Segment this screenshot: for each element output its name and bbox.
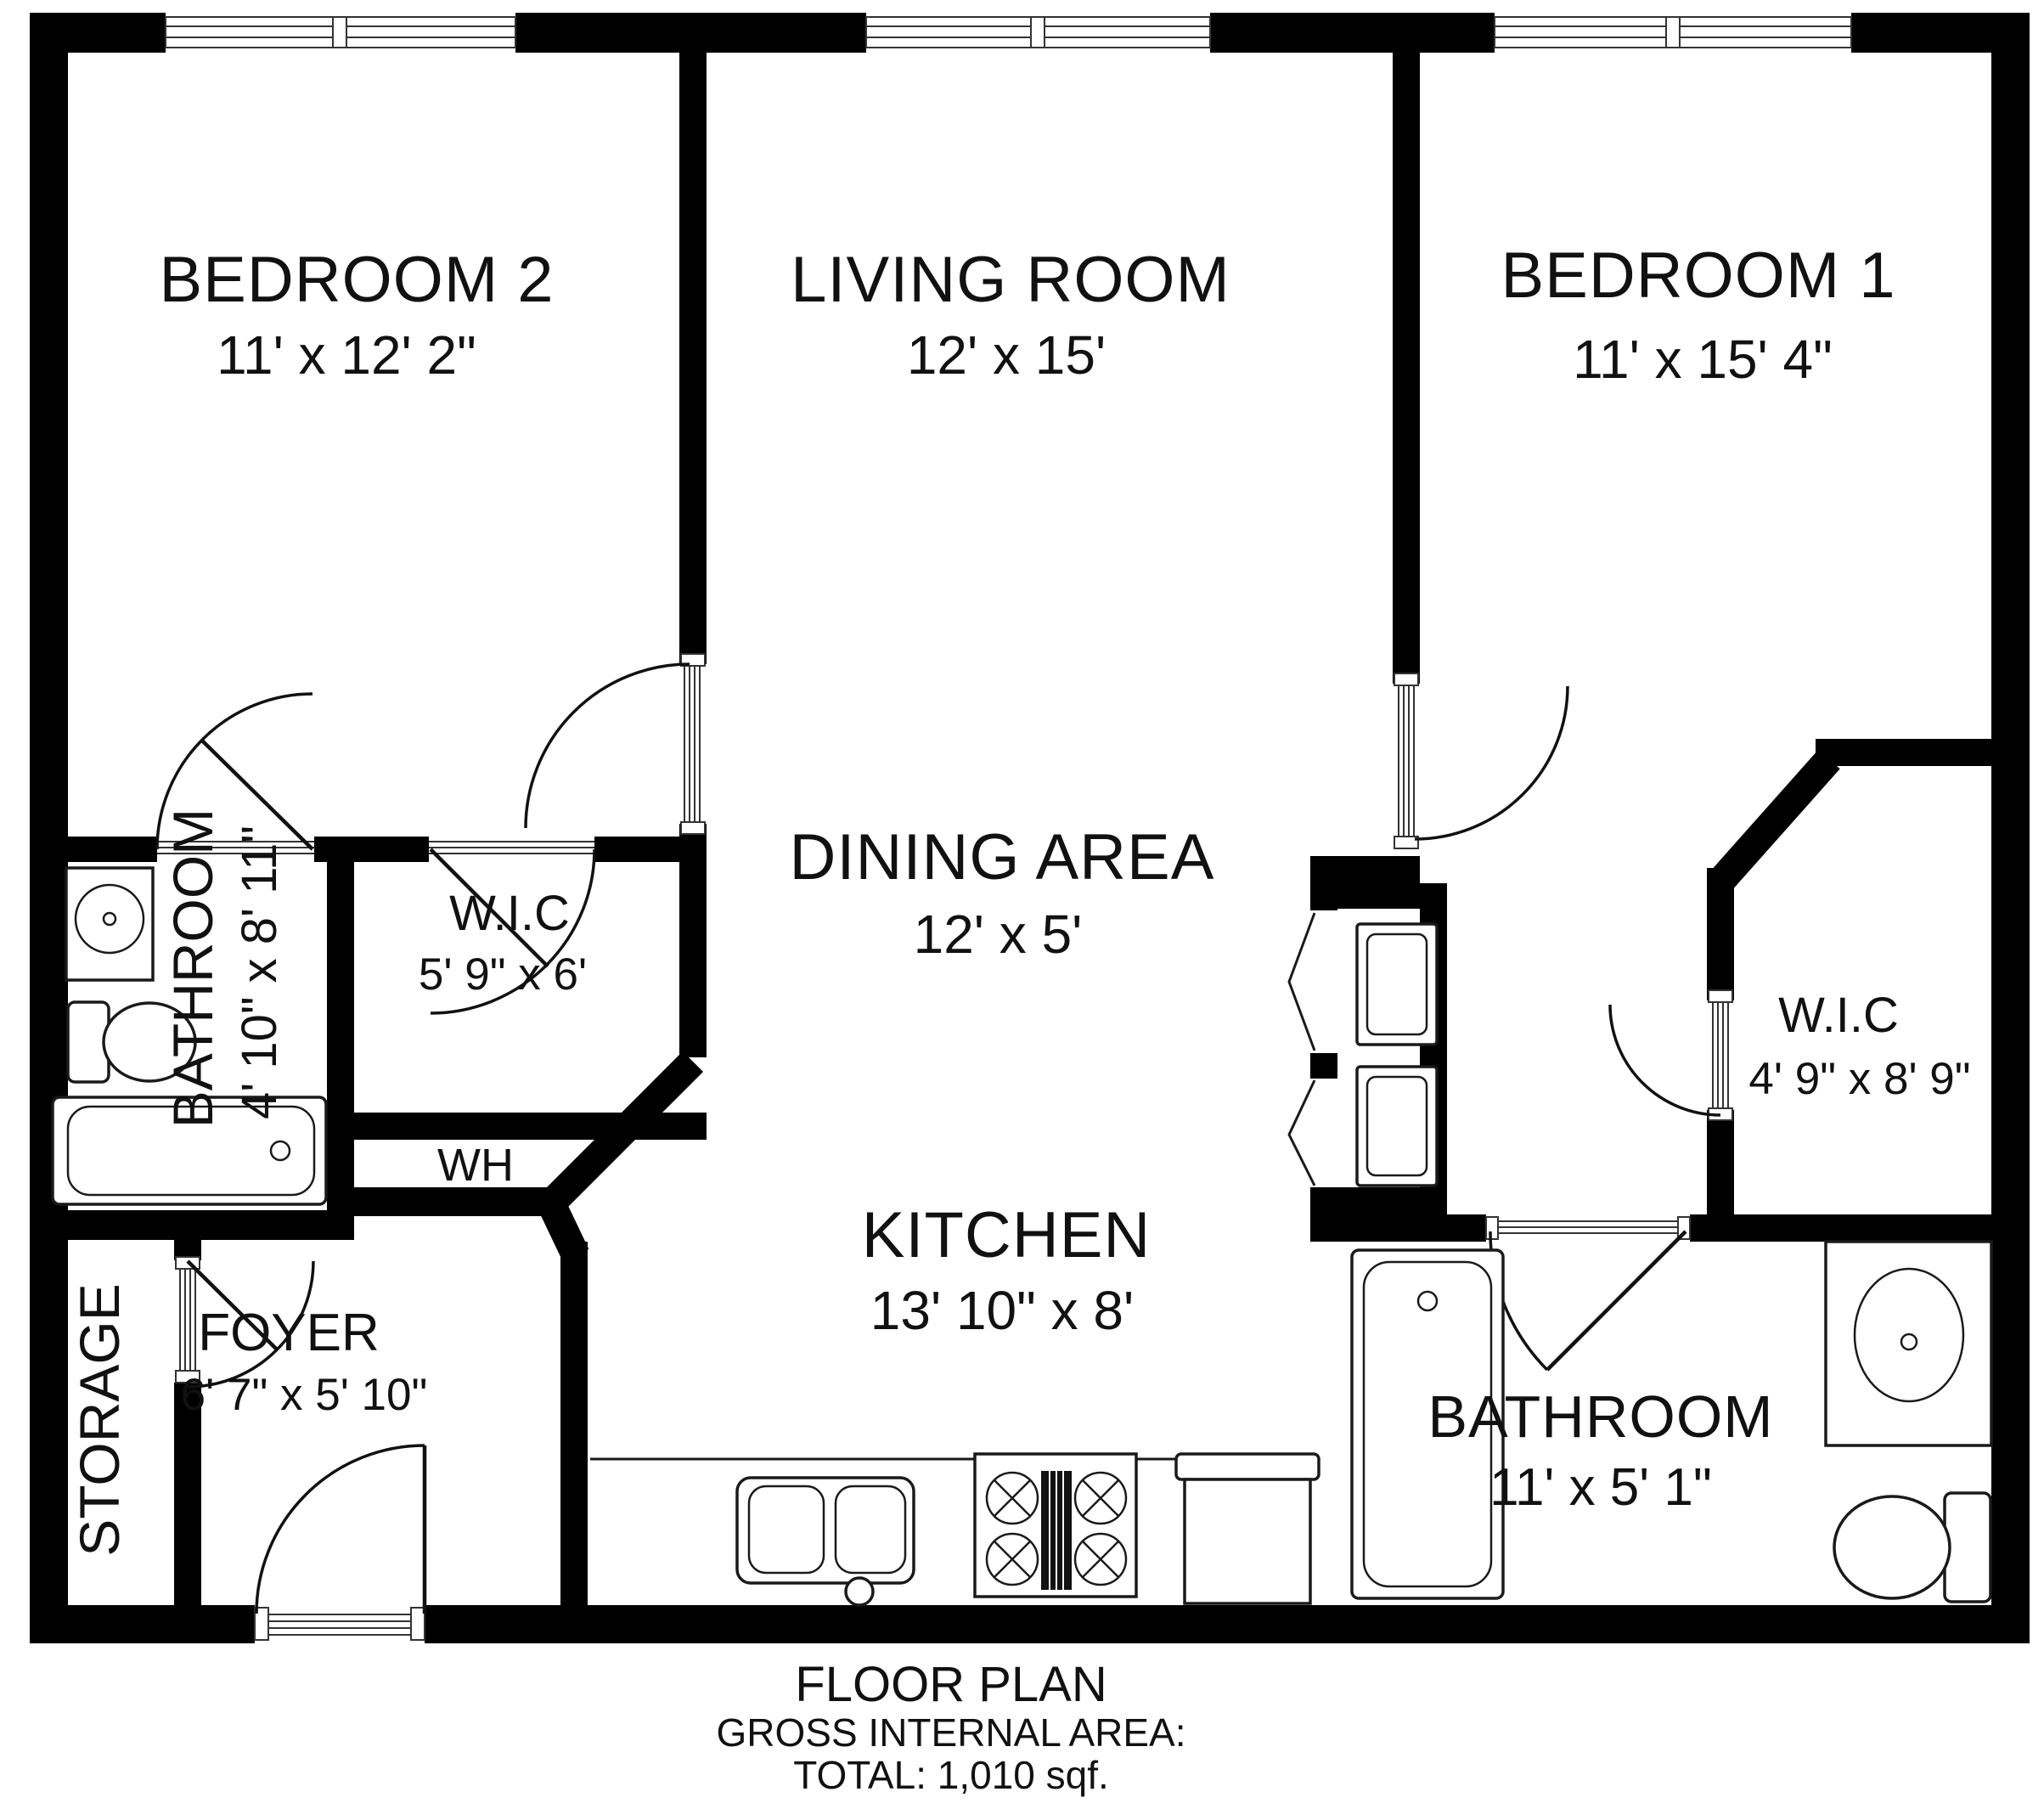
wh-label: WH: [437, 1140, 514, 1191]
window-living: [866, 17, 1210, 48]
threshold-bathroom2-door: [1486, 1217, 1690, 1239]
bathroom2-vanity: [1826, 1242, 1991, 1445]
bedroom1-dims: 11' x 15' 4": [1573, 329, 1833, 390]
living-room-dims: 12' x 15': [907, 324, 1106, 386]
storage-label: STORAGE: [68, 1283, 131, 1557]
entry-door-arc: [256, 1445, 425, 1614]
footer-total: TOTAL: 1,010 sqf.: [793, 1753, 1109, 1797]
dining-area-dims: 12' x 5': [914, 904, 1083, 965]
foyer-dims: 6' 7" x 5' 10": [181, 1370, 428, 1420]
threshold-bedroom2-door: [681, 654, 705, 834]
kitchen-dims: 13' 10" x 8': [870, 1280, 1134, 1341]
bathroom2-toilet: [1834, 1493, 1991, 1602]
bedroom1-door-arc: [1415, 686, 1568, 839]
floor-plan-page: BEDROOM 2 11' x 12' 2" LIVING ROOM 12' x…: [0, 0, 2044, 1803]
threshold-storage-door: [176, 1257, 200, 1383]
threshold-bedroom1-door: [1394, 673, 1418, 848]
bathroom1-dims: 4' 10" x 8' 11": [232, 825, 287, 1119]
bedroom1-label: BEDROOM 1: [1501, 239, 1895, 312]
living-room-label: LIVING ROOM: [791, 244, 1230, 316]
threshold-entry-door: [255, 1608, 425, 1640]
windows: [166, 17, 1851, 48]
stove: [975, 1454, 1136, 1597]
wic1-dims: 5' 9" x 6': [419, 949, 587, 1000]
kitchen-label: KITCHEN: [862, 1199, 1152, 1271]
floor-plan-svg: BEDROOM 2 11' x 12' 2" LIVING ROOM 12' x…: [0, 0, 2044, 1803]
bathroom2-dims: 11' x 5' 1": [1489, 1458, 1712, 1517]
window-bedroom1: [1495, 17, 1851, 48]
window-bedroom2: [166, 17, 515, 48]
threshold-wic1-door: [429, 842, 594, 854]
foyer-label: FOYER: [198, 1304, 380, 1362]
bifold-door-lower: [1289, 1080, 1315, 1186]
footer-title: FLOOR PLAN: [795, 1657, 1106, 1712]
bedroom2-dims: 11' x 12' 2": [217, 324, 476, 386]
bathroom2-door-leaf: [1547, 1231, 1686, 1370]
kitchen-sink: [737, 1478, 914, 1605]
dryer: [1357, 1067, 1437, 1186]
dining-area-label: DINING AREA: [790, 821, 1215, 893]
washer: [1357, 924, 1437, 1045]
bifold-door-upper: [1289, 913, 1315, 1051]
bedroom2-door-arc: [526, 664, 690, 828]
bedroom2-label: BEDROOM 2: [159, 244, 554, 316]
footer: FLOOR PLAN GROSS INTERNAL AREA: TOTAL: 1…: [717, 1657, 1186, 1797]
bathroom2-label: BATHROOM: [1427, 1383, 1773, 1450]
bathroom1-vanity: [66, 868, 153, 980]
threshold-wic2-door: [1709, 990, 1732, 1120]
wic1-label: W.I.C: [449, 886, 570, 941]
refrigerator: [1176, 1454, 1319, 1603]
wic2-door-arc: [1610, 1005, 1720, 1115]
wic2-dims: 4' 9" x 8' 9": [1748, 1054, 1970, 1104]
footer-area-heading: GROSS INTERNAL AREA:: [717, 1710, 1186, 1755]
bathroom1-label: BATHROOM: [161, 809, 224, 1128]
wic2-label: W.I.C: [1778, 988, 1899, 1043]
